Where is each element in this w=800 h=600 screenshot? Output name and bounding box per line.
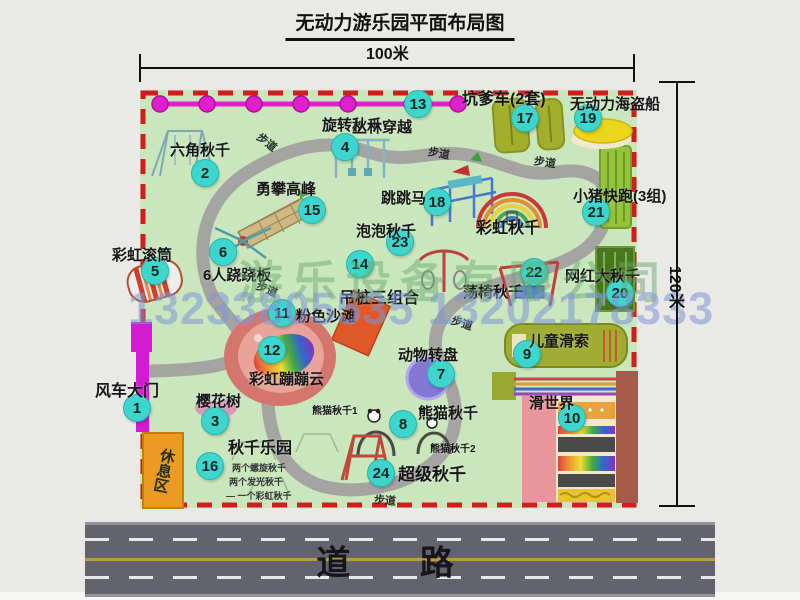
attraction-label-15: 勇攀高峰 xyxy=(256,178,316,199)
attraction-label-18: 跳跳马 xyxy=(381,187,426,208)
attraction-label-2: 六角秋千 xyxy=(170,139,230,160)
attraction-label-13: 丛林穿越 xyxy=(352,116,412,137)
dimension-height-tick-bottom xyxy=(659,505,695,507)
attraction-label-3: 樱花树 xyxy=(196,390,241,411)
attraction-badge-13: 13 xyxy=(404,90,432,118)
attraction-label-7: 动物转盘 xyxy=(398,344,458,365)
attraction-label-19: 无动力海盗船 xyxy=(570,93,660,114)
path-label-5: 步道 xyxy=(373,491,396,509)
attraction-label-10: 滑世界 xyxy=(529,392,574,413)
attraction-badge-2: 2 xyxy=(191,159,219,187)
attraction-label-1: 风车大门 xyxy=(95,377,159,401)
attraction-badge-6: 6 xyxy=(209,238,237,266)
attraction-label-23: 泡泡秋千 xyxy=(356,220,416,241)
attraction-label-12: 彩虹蹦蹦云 xyxy=(249,368,324,389)
swing-park-note-1: 两个发光秋千 xyxy=(229,475,283,488)
attraction-badge-12: 12 xyxy=(258,336,286,364)
attraction-label-21: 小猪快跑(3组) xyxy=(573,185,666,206)
extra-label-2: 熊猫秋千2 xyxy=(430,440,476,455)
attraction-badge-18: 18 xyxy=(423,188,451,216)
attraction-label-17: 坑爹车(2套) xyxy=(462,85,546,109)
attraction-badge-15: 15 xyxy=(298,196,326,224)
path-label-3: 步道 xyxy=(533,153,557,172)
dimension-width-tick-left xyxy=(139,54,141,82)
slide-world-icon xyxy=(492,371,638,503)
dimension-height-tick-top xyxy=(659,81,695,83)
road-label: 道 路 xyxy=(85,535,715,584)
dimension-width-line xyxy=(140,67,635,69)
extra-label-1: 熊猫秋千1 xyxy=(312,402,358,417)
park-map-page: 无动力游乐园平面布局图 100米 120米 xyxy=(0,0,800,600)
watermark-phone: 13233805535 13202178333 xyxy=(128,283,714,335)
road: 道 路 xyxy=(85,522,715,597)
attraction-badge-8: 8 xyxy=(389,410,417,438)
attraction-label-5: 彩虹滚筒 xyxy=(112,244,172,265)
attraction-badge-3: 3 xyxy=(201,407,229,435)
page-title: 无动力游乐园平面布局图 xyxy=(285,8,514,41)
swing-park-note-2: — 一个彩虹秋千 xyxy=(226,489,292,502)
dimension-width-tick-right xyxy=(633,54,635,82)
attraction-label-16: 秋千乐园 xyxy=(228,434,292,458)
swing-park-note-0: 两个螺旋秋千 xyxy=(232,461,286,474)
attraction-badge-16: 16 xyxy=(196,452,224,480)
dimension-height-label: 120米 xyxy=(662,266,686,309)
rest-area-label: 休息区 xyxy=(148,446,178,494)
attraction-badge-24: 24 xyxy=(367,459,395,487)
rest-area: 休息区 xyxy=(142,432,184,509)
dimension-width-label: 100米 xyxy=(366,40,409,64)
dimension-height-line xyxy=(676,82,678,506)
extra-label-0: 彩虹秋千 xyxy=(476,214,540,238)
attraction-label-24: 超级秋千 xyxy=(398,460,466,485)
attraction-label-8: 熊猫秋千 xyxy=(418,402,478,423)
attraction-badge-4: 4 xyxy=(331,133,359,161)
